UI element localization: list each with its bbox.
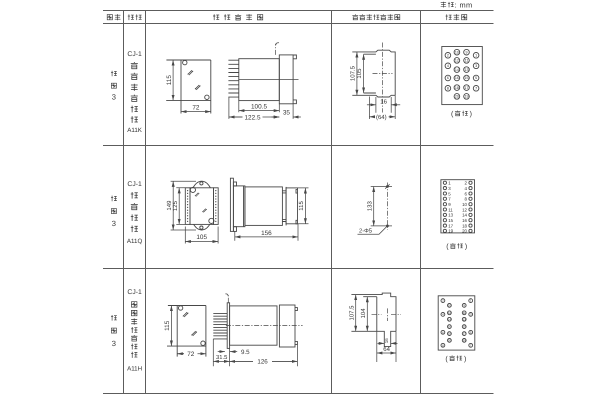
svg-text:125: 125 (172, 200, 179, 211)
svg-text:126: 126 (257, 359, 268, 366)
svg-text:18: 18 (462, 223, 467, 228)
svg-text:3: 3 (475, 64, 477, 68)
svg-text:16: 16 (462, 218, 467, 223)
svg-text:2-Φ5: 2-Φ5 (359, 228, 372, 235)
svg-text:64: 64 (383, 346, 390, 353)
svg-text:115: 115 (164, 320, 171, 331)
svg-text:20: 20 (462, 229, 467, 234)
svg-text:12: 12 (462, 207, 467, 212)
svg-text:15: 15 (465, 76, 469, 80)
svg-text:CJ-1: CJ-1 (127, 51, 142, 58)
svg-text:133: 133 (367, 201, 374, 212)
svg-text:3: 3 (112, 339, 116, 348)
svg-text:18: 18 (455, 86, 459, 90)
svg-text:13: 13 (465, 68, 469, 72)
svg-text:3: 3 (112, 93, 116, 102)
svg-text:12: 12 (455, 59, 459, 63)
svg-text:10: 10 (455, 50, 459, 54)
svg-text:: mm: : mm (455, 1, 473, 10)
svg-text:156: 156 (261, 230, 272, 237)
svg-text:): ) (465, 243, 467, 251)
svg-text:9: 9 (466, 50, 468, 54)
svg-text:9.5: 9.5 (241, 349, 250, 356)
svg-text:17: 17 (465, 86, 469, 90)
svg-text:4: 4 (447, 64, 449, 68)
svg-text:107.5: 107.5 (349, 65, 356, 81)
svg-text:104: 104 (360, 308, 367, 319)
svg-text:6: 6 (447, 76, 449, 80)
svg-text:11: 11 (463, 311, 466, 315)
svg-text:105: 105 (356, 68, 363, 79)
svg-text:16: 16 (380, 99, 387, 106)
svg-text:13: 13 (448, 213, 453, 218)
svg-text:72: 72 (187, 351, 195, 358)
svg-text:7: 7 (475, 87, 477, 91)
svg-text:16: 16 (448, 325, 452, 329)
svg-text:19: 19 (465, 95, 469, 99)
svg-text:14: 14 (448, 317, 452, 321)
svg-text:122.5: 122.5 (245, 114, 261, 121)
svg-text:16: 16 (384, 338, 389, 343)
svg-text:17: 17 (448, 223, 453, 228)
svg-text:35: 35 (283, 110, 291, 117)
svg-text:11: 11 (465, 59, 469, 63)
svg-text:3: 3 (112, 219, 116, 228)
svg-text:14: 14 (455, 68, 459, 72)
svg-text:): ) (470, 110, 472, 118)
svg-text:105: 105 (196, 234, 207, 241)
svg-text:2: 2 (447, 54, 449, 58)
svg-text:17: 17 (463, 332, 467, 336)
svg-text:115: 115 (166, 75, 173, 86)
svg-text:5: 5 (475, 76, 477, 80)
svg-text:16: 16 (455, 76, 459, 80)
svg-text:A11Q: A11Q (127, 238, 143, 245)
svg-text:31.5: 31.5 (216, 354, 227, 361)
svg-text:115: 115 (298, 201, 305, 211)
svg-text:10: 10 (462, 202, 467, 207)
svg-text:A11K: A11K (127, 127, 143, 134)
svg-text:A11H: A11H (127, 366, 142, 373)
svg-text:18: 18 (448, 332, 452, 336)
svg-text:107.5: 107.5 (348, 305, 355, 321)
svg-text:19: 19 (463, 339, 467, 343)
svg-text:1: 1 (475, 54, 477, 58)
svg-text:15: 15 (448, 218, 453, 223)
svg-text:12: 12 (448, 311, 452, 315)
svg-text:72: 72 (192, 104, 200, 111)
svg-text:10: 10 (448, 304, 452, 308)
svg-text:CJ-1: CJ-1 (127, 289, 142, 296)
svg-text:(64): (64) (376, 114, 387, 121)
svg-text:149: 149 (166, 200, 173, 211)
svg-text:11: 11 (448, 207, 453, 212)
svg-text:15: 15 (463, 325, 467, 329)
svg-text:CJ-1: CJ-1 (127, 181, 142, 188)
svg-text:13: 13 (463, 317, 467, 321)
svg-text:20: 20 (448, 339, 452, 343)
svg-text:14: 14 (462, 213, 467, 218)
svg-text:100.5: 100.5 (251, 103, 267, 110)
svg-text:): ) (464, 355, 466, 363)
svg-text:20: 20 (455, 95, 459, 99)
svg-text:8: 8 (447, 87, 449, 91)
svg-text:19: 19 (448, 229, 453, 234)
